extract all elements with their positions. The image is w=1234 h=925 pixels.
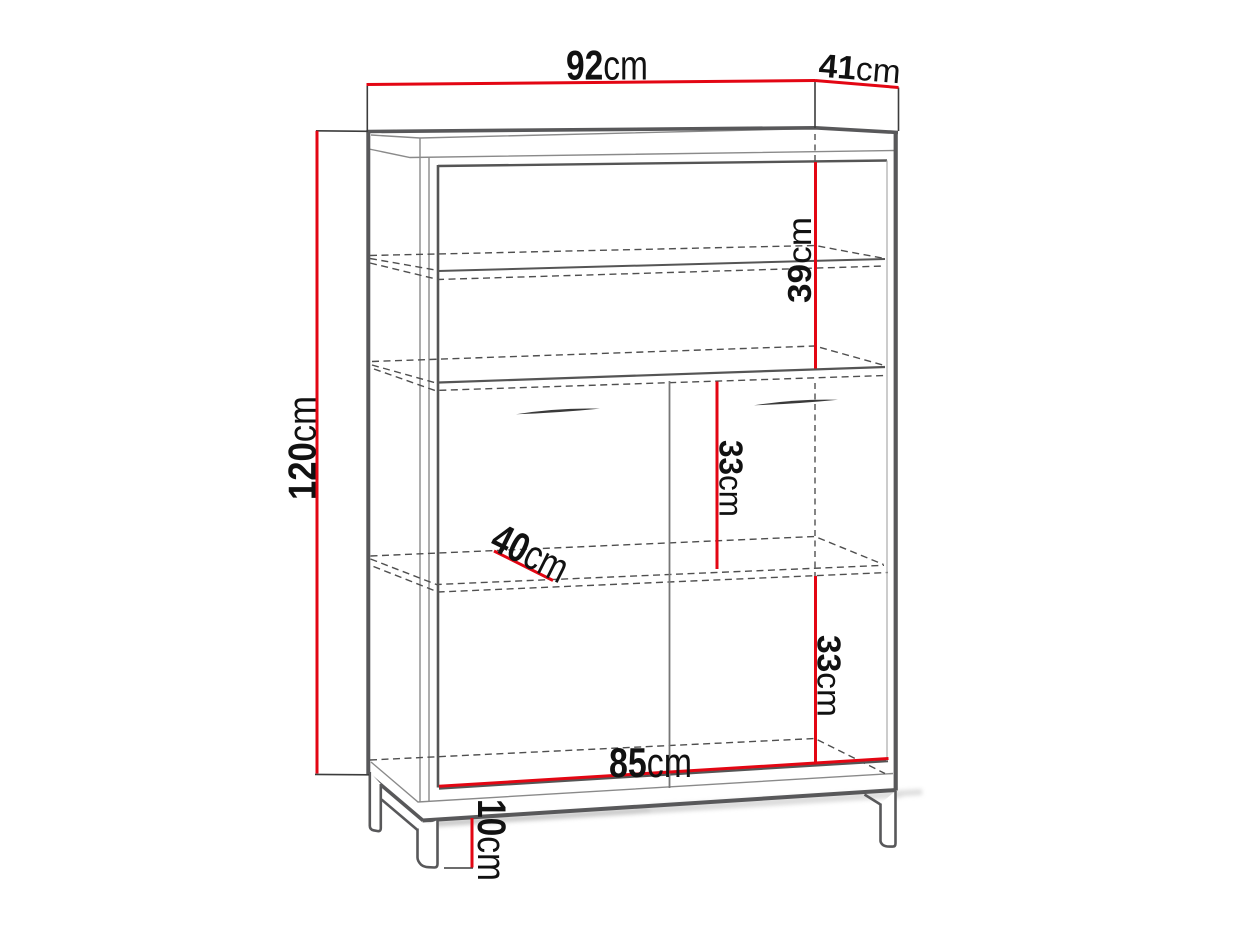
svg-text:120cm: 120cm: [282, 396, 325, 500]
svg-text:92cm: 92cm: [566, 42, 648, 89]
svg-text:33cm: 33cm: [713, 440, 750, 517]
svg-text:39cm: 39cm: [781, 217, 818, 303]
svg-text:10cm: 10cm: [469, 799, 513, 881]
svg-text:33cm: 33cm: [811, 635, 848, 717]
svg-text:85cm: 85cm: [609, 739, 692, 786]
svg-text:41cm: 41cm: [817, 47, 902, 91]
